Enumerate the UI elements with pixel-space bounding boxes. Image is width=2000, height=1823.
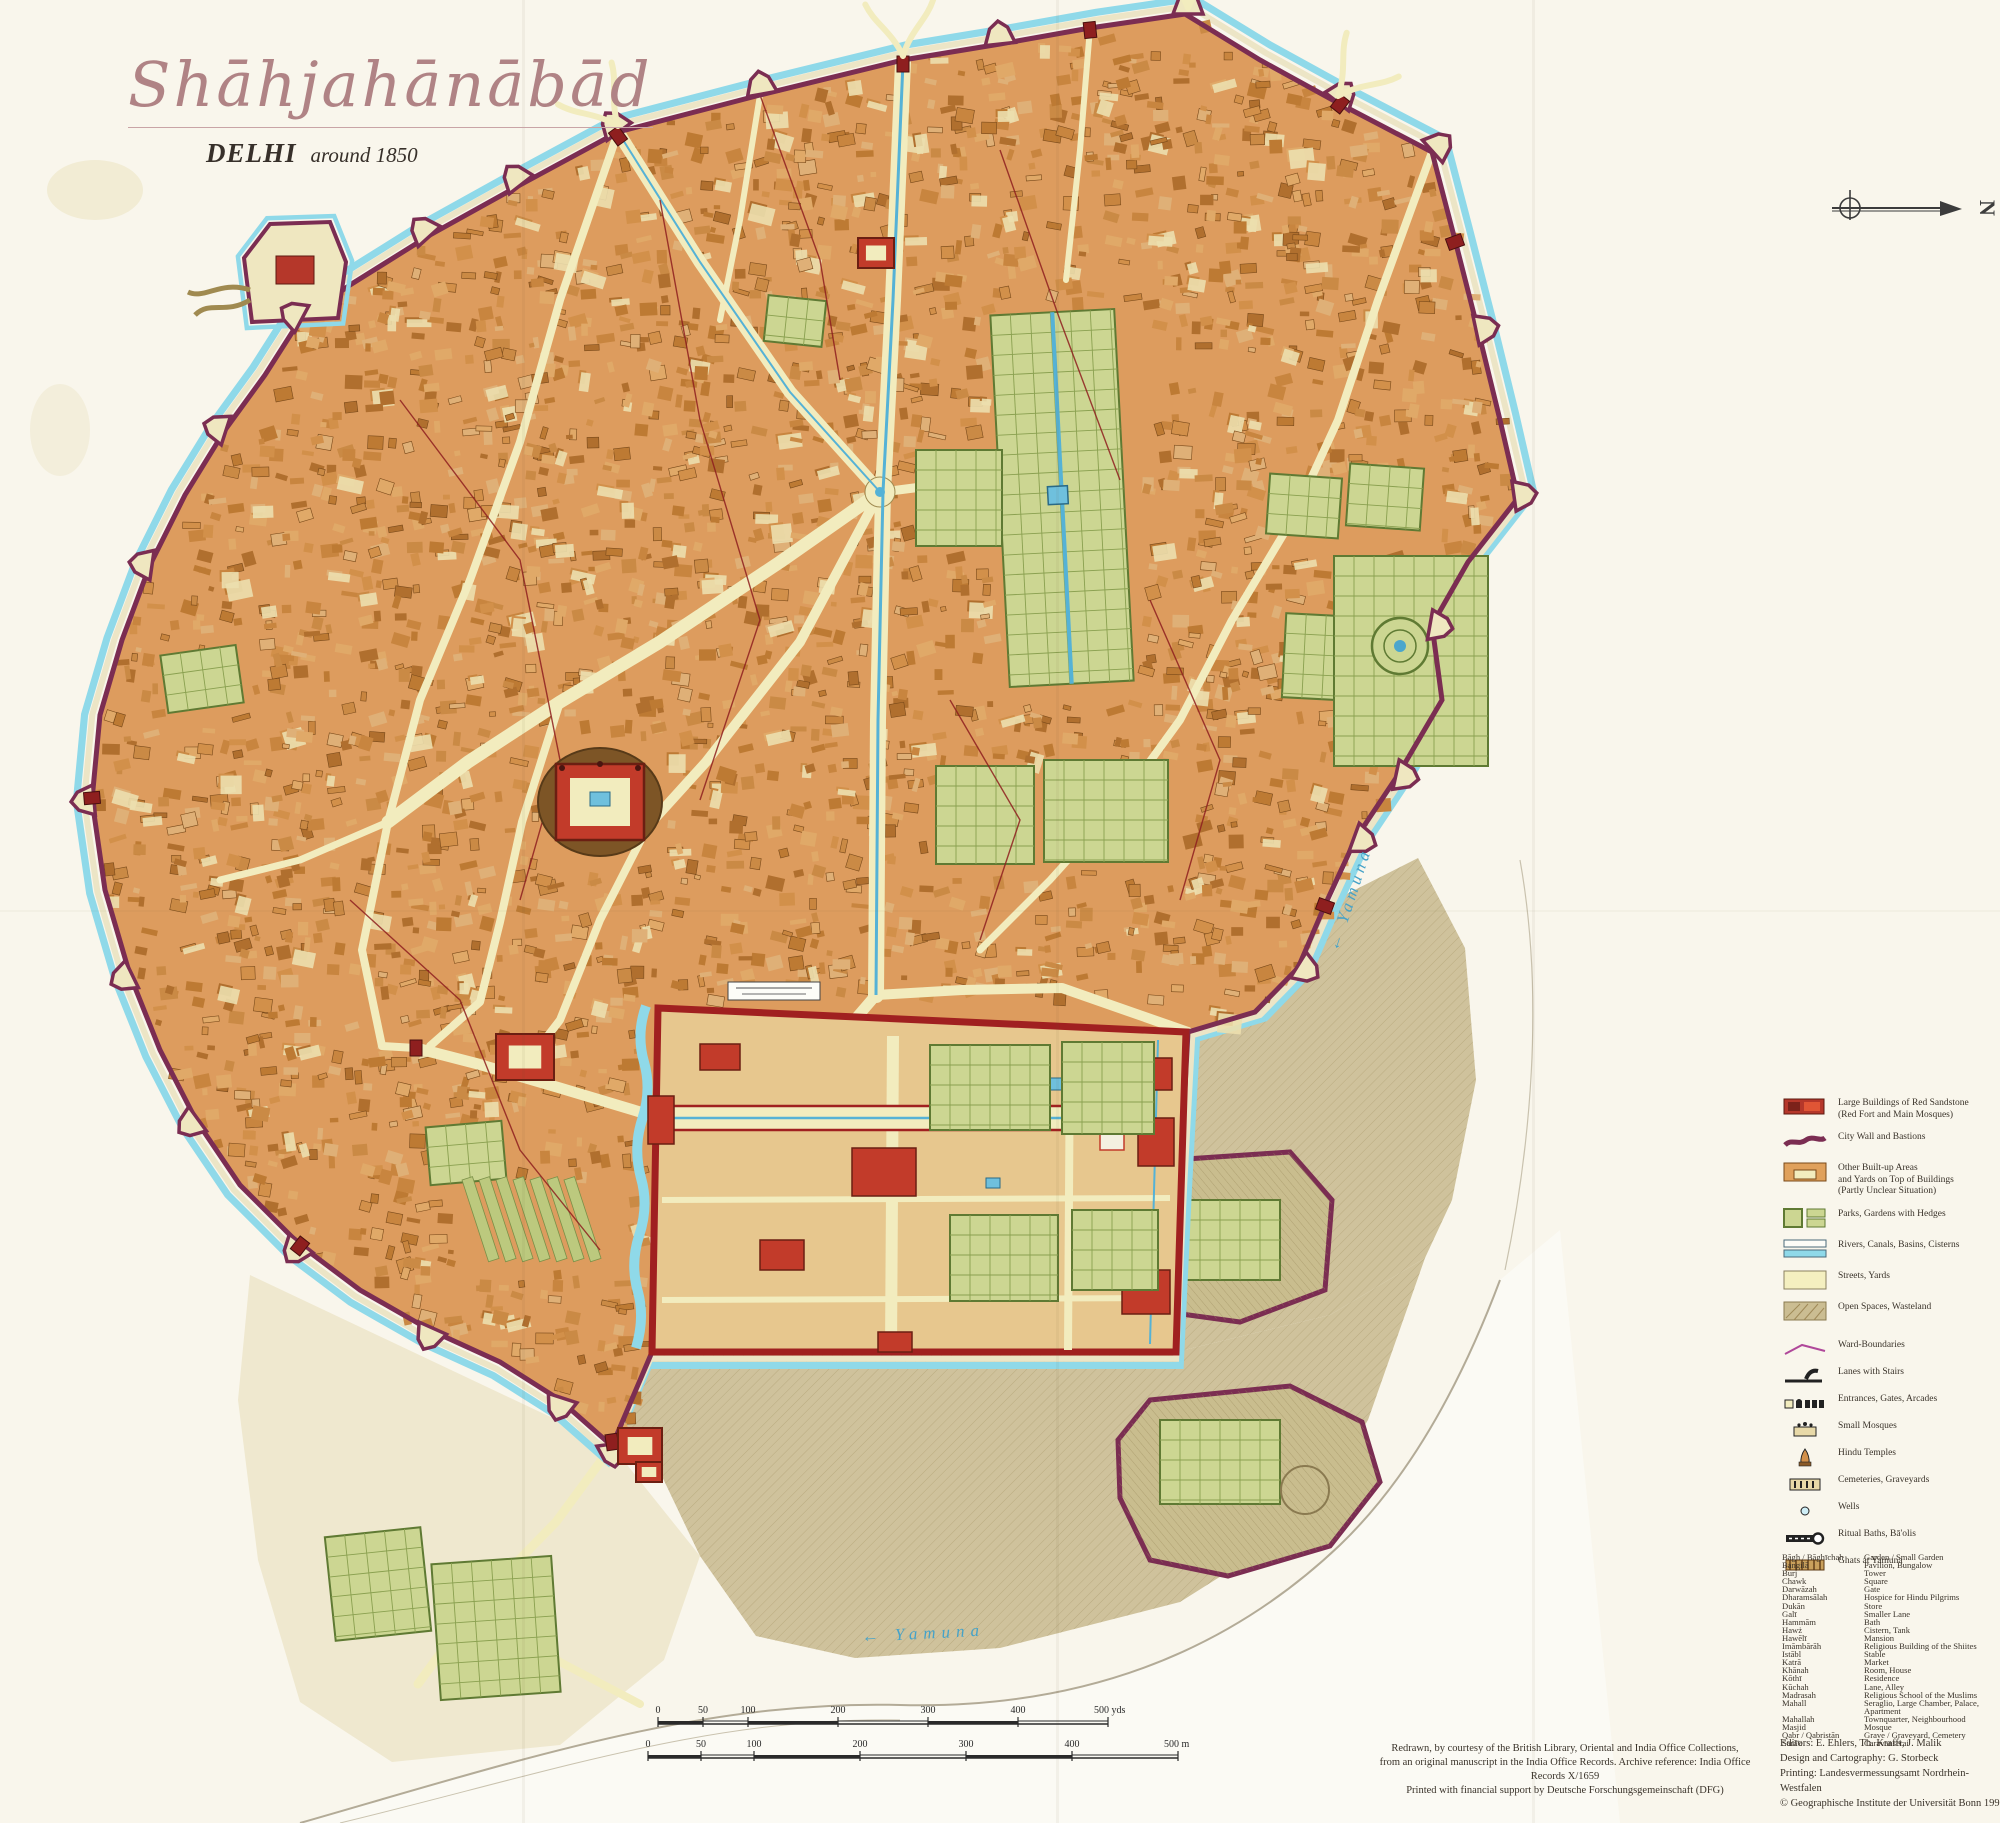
scale-tick-label: 100 bbox=[747, 1739, 762, 1750]
scale-tick-label: 0 bbox=[656, 1705, 661, 1716]
legend-item: Rivers, Canals, Basins, Cisterns bbox=[1782, 1238, 1997, 1260]
glossary-meaning: Seraglio, Large Chamber, Palace, Apartme… bbox=[1864, 1699, 2000, 1715]
glossary-meaning: Smaller Lane bbox=[1864, 1610, 2000, 1618]
lanes-stairs-swatch bbox=[1782, 1365, 1828, 1387]
scale-tick-label: 50 bbox=[696, 1739, 706, 1750]
credits-source-line: Redrawn, by courtesy of the British Libr… bbox=[1370, 1742, 1760, 1756]
legend-item: Small Mosques bbox=[1782, 1419, 1997, 1441]
title-block: Shāhjahānābād DELHI around 1850 bbox=[128, 48, 648, 169]
scale-tick-label: 500 m bbox=[1164, 1739, 1190, 1750]
legend-item: Streets, Yards bbox=[1782, 1269, 1997, 1291]
legend-item-label: Entrances, Gates, Arcades bbox=[1838, 1392, 1937, 1406]
legend-panel: Large Buildings of Red Sandstone(Red For… bbox=[1782, 1096, 1997, 1581]
legend-item: Hindu Temples bbox=[1782, 1446, 1997, 1468]
legend-item: Open Spaces, Wasteland bbox=[1782, 1300, 1997, 1322]
small-mosques-swatch bbox=[1782, 1419, 1828, 1441]
credits-source-line: from an original manuscript in the India… bbox=[1370, 1756, 1760, 1784]
glossary-term: Mahall bbox=[1782, 1699, 1864, 1715]
credits-imprint-line: Design and Cartography: G. Storbeck bbox=[1780, 1751, 2000, 1766]
credits-imprint-line: Printing: Landesvermessungsamt Nordrhein… bbox=[1780, 1766, 2000, 1796]
glossary-meaning: Hospice for Hindu Pilgrims bbox=[1864, 1593, 2000, 1601]
city-wall-swatch bbox=[1782, 1130, 1828, 1152]
compass-n-label: N bbox=[1975, 200, 1998, 216]
entrances-swatch bbox=[1782, 1392, 1828, 1414]
glossary-row: MahallSeraglio, Large Chamber, Palace, A… bbox=[1782, 1699, 2000, 1715]
legend-item-label: Wells bbox=[1838, 1500, 1859, 1514]
legend-item-label: Rivers, Canals, Basins, Cisterns bbox=[1838, 1238, 1959, 1252]
legend-item: Entrances, Gates, Arcades bbox=[1782, 1392, 1997, 1414]
credits-imprint: Editors: E. Ehlers, Th. Krafft, J. Malik… bbox=[1780, 1736, 2000, 1811]
legend-item: Ritual Baths, Bā'olis bbox=[1782, 1527, 1997, 1549]
credits-imprint-line: © Geographische Institute der Universitä… bbox=[1780, 1796, 2000, 1811]
scale-tick-label: 300 bbox=[921, 1705, 936, 1716]
scale-tick-label: 100 bbox=[741, 1705, 756, 1716]
scale-tick-label: 200 bbox=[853, 1739, 868, 1750]
glossary-row: BurjTower bbox=[1782, 1569, 2000, 1577]
wells-swatch bbox=[1782, 1500, 1828, 1522]
legend-item: City Wall and Bastions bbox=[1782, 1130, 1997, 1152]
credits-imprint-line: Editors: E. Ehlers, Th. Krafft, J. Malik bbox=[1780, 1736, 2000, 1751]
map-title: Shāhjahānābād bbox=[128, 48, 653, 128]
glossary-row: IstāblStable bbox=[1782, 1650, 2000, 1658]
credits-source: Redrawn, by courtesy of the British Libr… bbox=[1370, 1742, 1760, 1798]
glossary-panel: Bāgh / BāghīchahGarden / Small GardenBan… bbox=[1782, 1553, 2000, 1747]
legend-item-label: Open Spaces, Wasteland bbox=[1838, 1300, 1931, 1314]
streets-swatch bbox=[1782, 1269, 1828, 1291]
legend-item-label: Cemeteries, Graveyards bbox=[1838, 1473, 1929, 1487]
compass-rose: N bbox=[1828, 186, 1998, 230]
legend-item-label: Hindu Temples bbox=[1838, 1446, 1896, 1460]
glossary-row: BangilāPavilion, Bungalow bbox=[1782, 1561, 2000, 1569]
scale-tick-label: 500 yds bbox=[1094, 1705, 1126, 1716]
legend-item: Other Built-up Areasand Yards on Top of … bbox=[1782, 1161, 1997, 1198]
built-up-swatch bbox=[1782, 1161, 1828, 1183]
map-canvas: ← Yamuna← Yamuna bbox=[0, 0, 2000, 1823]
legend-item-label: Ward-Boundaries bbox=[1838, 1338, 1905, 1352]
legend-item: Parks, Gardens with Hedges bbox=[1782, 1207, 1997, 1229]
legend-item-label: Streets, Yards bbox=[1838, 1269, 1890, 1283]
rivers-swatch bbox=[1782, 1238, 1828, 1260]
legend-item-label: City Wall and Bastions bbox=[1838, 1130, 1925, 1144]
legend-item: Wells bbox=[1782, 1500, 1997, 1522]
glossary-row: DharamsālahHospice for Hindu Pilgrims bbox=[1782, 1593, 2000, 1601]
scale-bars: 050100200300400500 yds050100200300400500… bbox=[640, 1698, 1220, 1770]
scale-bar-meters: 050100200300400500 m bbox=[646, 1739, 1190, 1761]
north-arrow-icon: N bbox=[1828, 186, 1998, 230]
scale-tick-label: 300 bbox=[959, 1739, 974, 1750]
legend-item: Cemeteries, Graveyards bbox=[1782, 1473, 1997, 1495]
legend-item-label: Large Buildings of Red Sandstone(Red For… bbox=[1838, 1096, 1969, 1121]
legend-item-label: Small Mosques bbox=[1838, 1419, 1897, 1433]
scale-tick-label: 0 bbox=[646, 1739, 651, 1750]
ward-boundary-swatch bbox=[1782, 1338, 1828, 1360]
scale-tick-label: 400 bbox=[1065, 1739, 1080, 1750]
legend-item-label: Lanes with Stairs bbox=[1838, 1365, 1904, 1379]
scale-tick-label: 200 bbox=[831, 1705, 846, 1716]
subtitle-around: around 1850 bbox=[311, 143, 418, 167]
legend-item-label: Other Built-up Areasand Yards on Top of … bbox=[1838, 1161, 1954, 1198]
legend-item: Ward-Boundaries bbox=[1782, 1338, 1997, 1360]
red-sandstone-swatch bbox=[1782, 1096, 1828, 1118]
scale-tick-label: 50 bbox=[698, 1705, 708, 1716]
scale-bar-yards: 050100200300400500 yds bbox=[656, 1705, 1126, 1727]
map-subtitle: DELHI around 1850 bbox=[206, 138, 648, 169]
glossary-row: ImāmbārāhReligious Building of the Shiit… bbox=[1782, 1642, 2000, 1650]
scale-tick-label: 400 bbox=[1011, 1705, 1026, 1716]
ritual-baths-swatch bbox=[1782, 1527, 1828, 1549]
legend-item: Lanes with Stairs bbox=[1782, 1365, 1997, 1387]
legend-item-label: Parks, Gardens with Hedges bbox=[1838, 1207, 1946, 1221]
glossary-meaning: Square bbox=[1864, 1577, 2000, 1585]
cemeteries-swatch bbox=[1782, 1473, 1828, 1495]
credits-source-line: Printed with financial support by Deutsc… bbox=[1370, 1784, 1760, 1798]
scale-bar-graphic: 050100200300400500 yds050100200300400500… bbox=[640, 1698, 1220, 1770]
open-spaces-swatch bbox=[1782, 1300, 1828, 1322]
subtitle-city: DELHI bbox=[206, 138, 297, 168]
legend-item-label: Ritual Baths, Bā'olis bbox=[1838, 1527, 1916, 1541]
legend-item: Large Buildings of Red Sandstone(Red For… bbox=[1782, 1096, 1997, 1121]
parks-swatch bbox=[1782, 1207, 1828, 1229]
hindu-temples-swatch bbox=[1782, 1446, 1828, 1468]
map-sheet: ← Yamuna← Yamuna Shāhjahānābād DELHI aro… bbox=[0, 0, 2000, 1823]
